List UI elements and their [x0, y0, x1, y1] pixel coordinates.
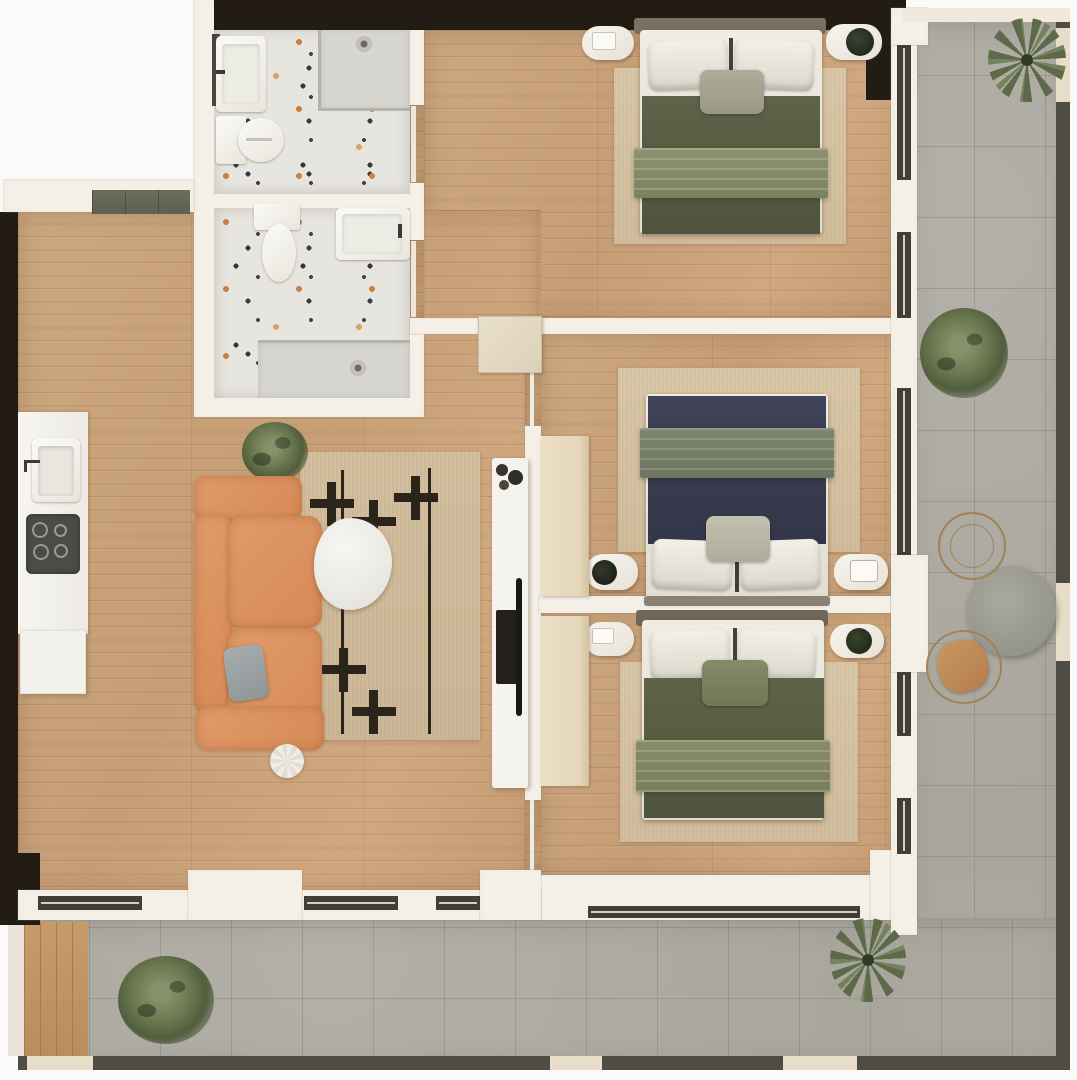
window-bedroom1-b [897, 232, 911, 318]
sofa-seat-1 [228, 516, 322, 628]
pouf [270, 744, 304, 778]
tv-screen [516, 578, 522, 716]
bathroom1-faucet-icon [216, 70, 225, 74]
burner-icon-1 [32, 522, 48, 538]
bedroom2-wardrobe [541, 436, 589, 596]
window-bedroom1-a [897, 45, 911, 180]
kitchen-sink-basin [38, 446, 74, 496]
wall-bed1-bed2-left [410, 318, 480, 334]
window-bedroom3-a [897, 672, 911, 736]
kitchen-faucet-icon-2 [24, 460, 27, 472]
floor-plan [0, 0, 1077, 1080]
window-bedroom2 [897, 388, 911, 555]
window-living-a [38, 896, 142, 910]
bed1-nightstand-book [592, 32, 616, 50]
corridor-open-door [478, 316, 542, 373]
bed2-headboard [644, 596, 830, 606]
rug-cross-motif-5 [352, 690, 396, 734]
console-decor-2 [508, 470, 523, 485]
terrace-palm-topright [988, 18, 1066, 102]
bed3-accent-pillow [702, 660, 768, 706]
console-decor-3 [499, 480, 509, 490]
shower1-glass [320, 108, 410, 111]
bathroom2-faucet-icon [398, 224, 402, 238]
bedroom3-door [530, 800, 534, 874]
bed1-throw-blanket [634, 148, 828, 198]
window-bedroom3-b [897, 798, 911, 854]
console-decor-1 [496, 464, 508, 476]
rug-cross-motif-3 [394, 476, 438, 520]
sofa-throw-pillow [222, 643, 269, 702]
terrace-chair-top-inner [950, 524, 994, 568]
deck-edge-strip [8, 922, 24, 1056]
window-living-b [304, 896, 398, 910]
bathroom1-basin-bowl [222, 44, 260, 104]
shower1-drain-icon [356, 36, 372, 52]
bathroom2-basin-bowl [342, 214, 402, 254]
bed3-nightstand-plant-icon [846, 628, 872, 654]
bathroom2-toilet-bowl [262, 224, 296, 282]
sofa-plant [242, 422, 308, 482]
parapet-bottom [18, 1056, 1070, 1070]
corner-living-bottomright [480, 870, 541, 920]
bathroom1-toilet-line [246, 138, 272, 141]
sofa-chaise [196, 706, 324, 750]
media-component [496, 610, 518, 684]
wall-bed1-bed2-right [541, 318, 906, 334]
window-living-c [436, 896, 480, 910]
bed2-nightstand-tablet [850, 560, 878, 582]
bed3-throw-blanket [636, 740, 830, 792]
parapet-glass-right-b [1056, 583, 1070, 661]
bed3-nightstand-book [592, 628, 614, 644]
bed1-accent-pillow [700, 70, 764, 114]
terrace-top-edge [903, 8, 1070, 22]
rug-cross-motif-4 [322, 648, 366, 692]
pillar-right-wide [891, 555, 928, 672]
terrace-shrub-right [920, 308, 1008, 398]
parapet-glass-bottom-c [783, 1056, 857, 1070]
shower2-tray [258, 342, 410, 398]
shower2-drain-icon [350, 360, 366, 376]
parapet-glass-bottom-a [27, 1056, 93, 1070]
terrace-palm-bottom [830, 918, 906, 1002]
wall-left-black [0, 212, 18, 913]
terrace-shrub-bottom [118, 956, 214, 1044]
bedroom3-wardrobe [541, 616, 589, 786]
burner-icon-4 [54, 544, 68, 558]
shower2-glass [258, 340, 410, 343]
bed2-nightstand-plant-icon [592, 560, 617, 585]
window-bedroom3-bottom [588, 906, 860, 918]
bed2-accent-pillow [706, 516, 770, 562]
entrance-doormat [92, 190, 190, 214]
pillar-living-bottom [188, 870, 302, 920]
shower1-glass-side [318, 28, 321, 111]
wood-deck [24, 922, 88, 1056]
burner-icon-2 [54, 524, 67, 537]
bathroom1-door [411, 106, 416, 182]
rug-line-2 [428, 468, 431, 734]
parapet-right [1056, 22, 1070, 1070]
bed2-throw-blanket [640, 428, 834, 478]
bathroom2-door [411, 241, 416, 317]
bed1-nightstand-plant-icon [846, 28, 874, 56]
kitchen-base-cabinet [20, 630, 86, 694]
burner-icon-3 [33, 544, 49, 560]
parapet-glass-bottom-b [550, 1056, 602, 1070]
